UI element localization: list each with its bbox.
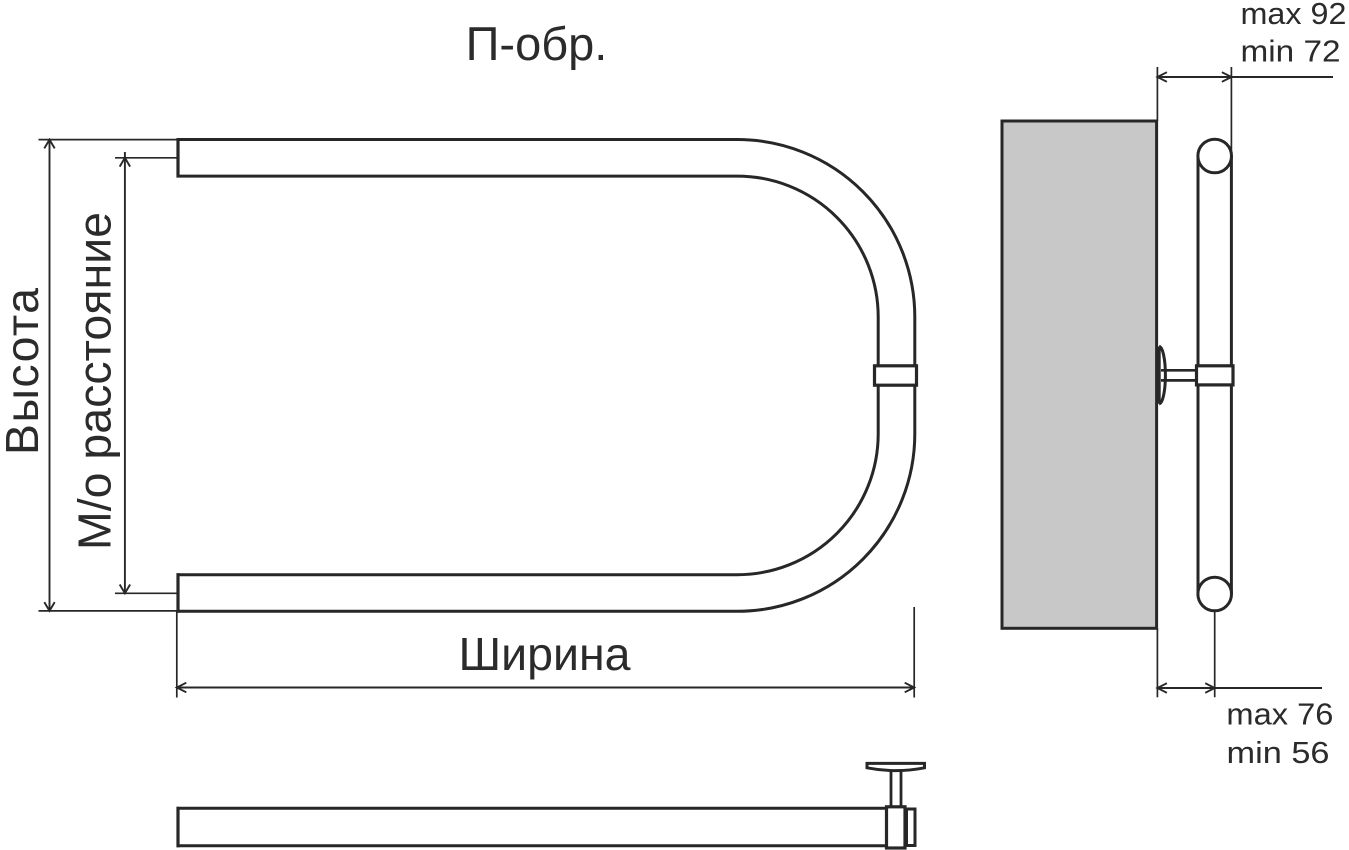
svg-text:min 56: min 56 xyxy=(1227,736,1330,770)
svg-text:min 72: min 72 xyxy=(1241,35,1341,69)
svg-text:М/о расстояние: М/о расстояние xyxy=(68,212,120,550)
svg-text:max 76: max 76 xyxy=(1226,697,1333,731)
svg-text:Высота: Высота xyxy=(0,288,48,455)
svg-text:Ширина: Ширина xyxy=(459,628,631,680)
svg-text:П-обр.: П-обр. xyxy=(466,17,608,70)
svg-text:max 92: max 92 xyxy=(1241,0,1347,31)
